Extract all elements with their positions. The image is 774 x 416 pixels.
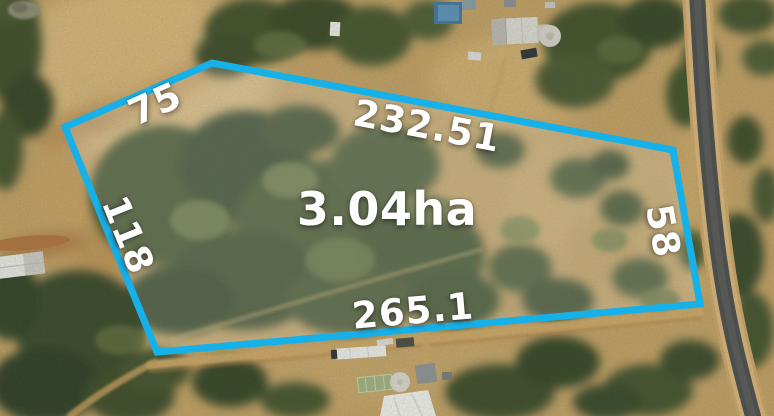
boundary-length-right: 58: [640, 201, 686, 260]
parcel-area-label: 3.04ha: [297, 186, 477, 232]
boundary-length-bottom: 265.1: [351, 287, 476, 334]
aerial-listing-image: 75 232.51 118 58 265.1 3.04ha: [0, 0, 774, 416]
